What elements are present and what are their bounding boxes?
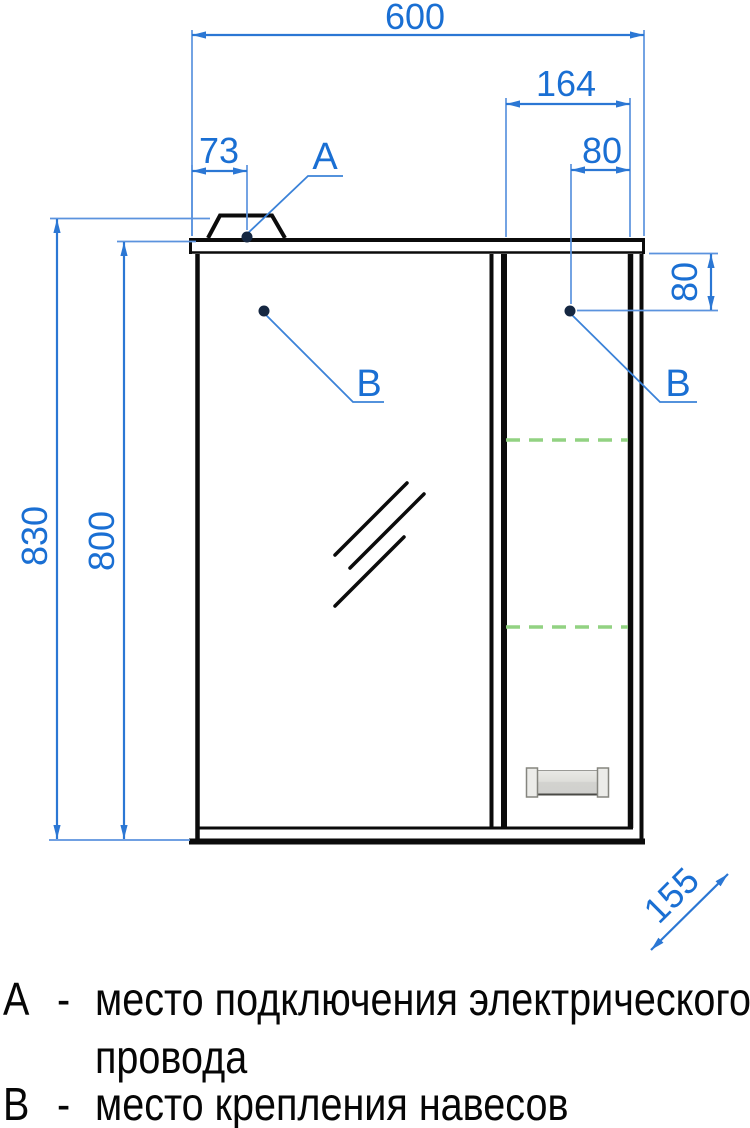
handle-end-cap (527, 768, 538, 797)
legend-b-text: место крепления навесов (95, 1081, 568, 1127)
dim-value-80-side: 80 (664, 262, 705, 302)
label-a: А (312, 136, 338, 178)
drawing-page: 600 164 80 73 830 (0, 0, 750, 1128)
callout-a: А (242, 136, 344, 243)
point-b-left-marker (259, 306, 270, 317)
mirror-glass-hatch (335, 483, 424, 606)
point-a-marker (242, 232, 253, 243)
dim-value-830: 830 (14, 506, 55, 566)
point-b-right-marker (565, 306, 576, 317)
label-b-right: В (665, 363, 690, 405)
dim-top-hinge-offset: 80 (571, 130, 630, 304)
dim-value-800: 800 (81, 511, 122, 571)
callout-b-left: В (259, 306, 385, 406)
legend-a-key: А (3, 976, 29, 1022)
handle-bar (537, 771, 598, 795)
dim-value-164: 164 (536, 63, 596, 104)
dim-side-hinge-offset: 80 (577, 254, 718, 311)
legend-a-dash: - (57, 976, 70, 1022)
dim-total-width: 600 (192, 0, 644, 236)
legend-b-key: В (3, 1081, 29, 1127)
label-b-left: В (356, 363, 381, 405)
dim-value-73: 73 (199, 130, 239, 171)
shelf-lines (506, 440, 628, 627)
legend-b-dash: - (57, 1081, 70, 1127)
dim-depth: 155 (635, 859, 728, 950)
dim-value-80-top: 80 (582, 130, 622, 171)
dim-value-600: 600 (385, 0, 445, 37)
technical-drawing: 600 164 80 73 830 (0, 0, 750, 975)
leader-line-a (247, 176, 343, 234)
dim-cabinet-height: 800 (81, 242, 196, 840)
door-handle (527, 768, 609, 797)
dim-value-155: 155 (635, 859, 706, 930)
cabinet-outline (189, 216, 645, 842)
legend-a-text-line1: место подключения электрического (95, 976, 750, 1022)
legend-a-text-line2: провода (95, 1034, 247, 1080)
handle-end-cap (598, 768, 609, 797)
